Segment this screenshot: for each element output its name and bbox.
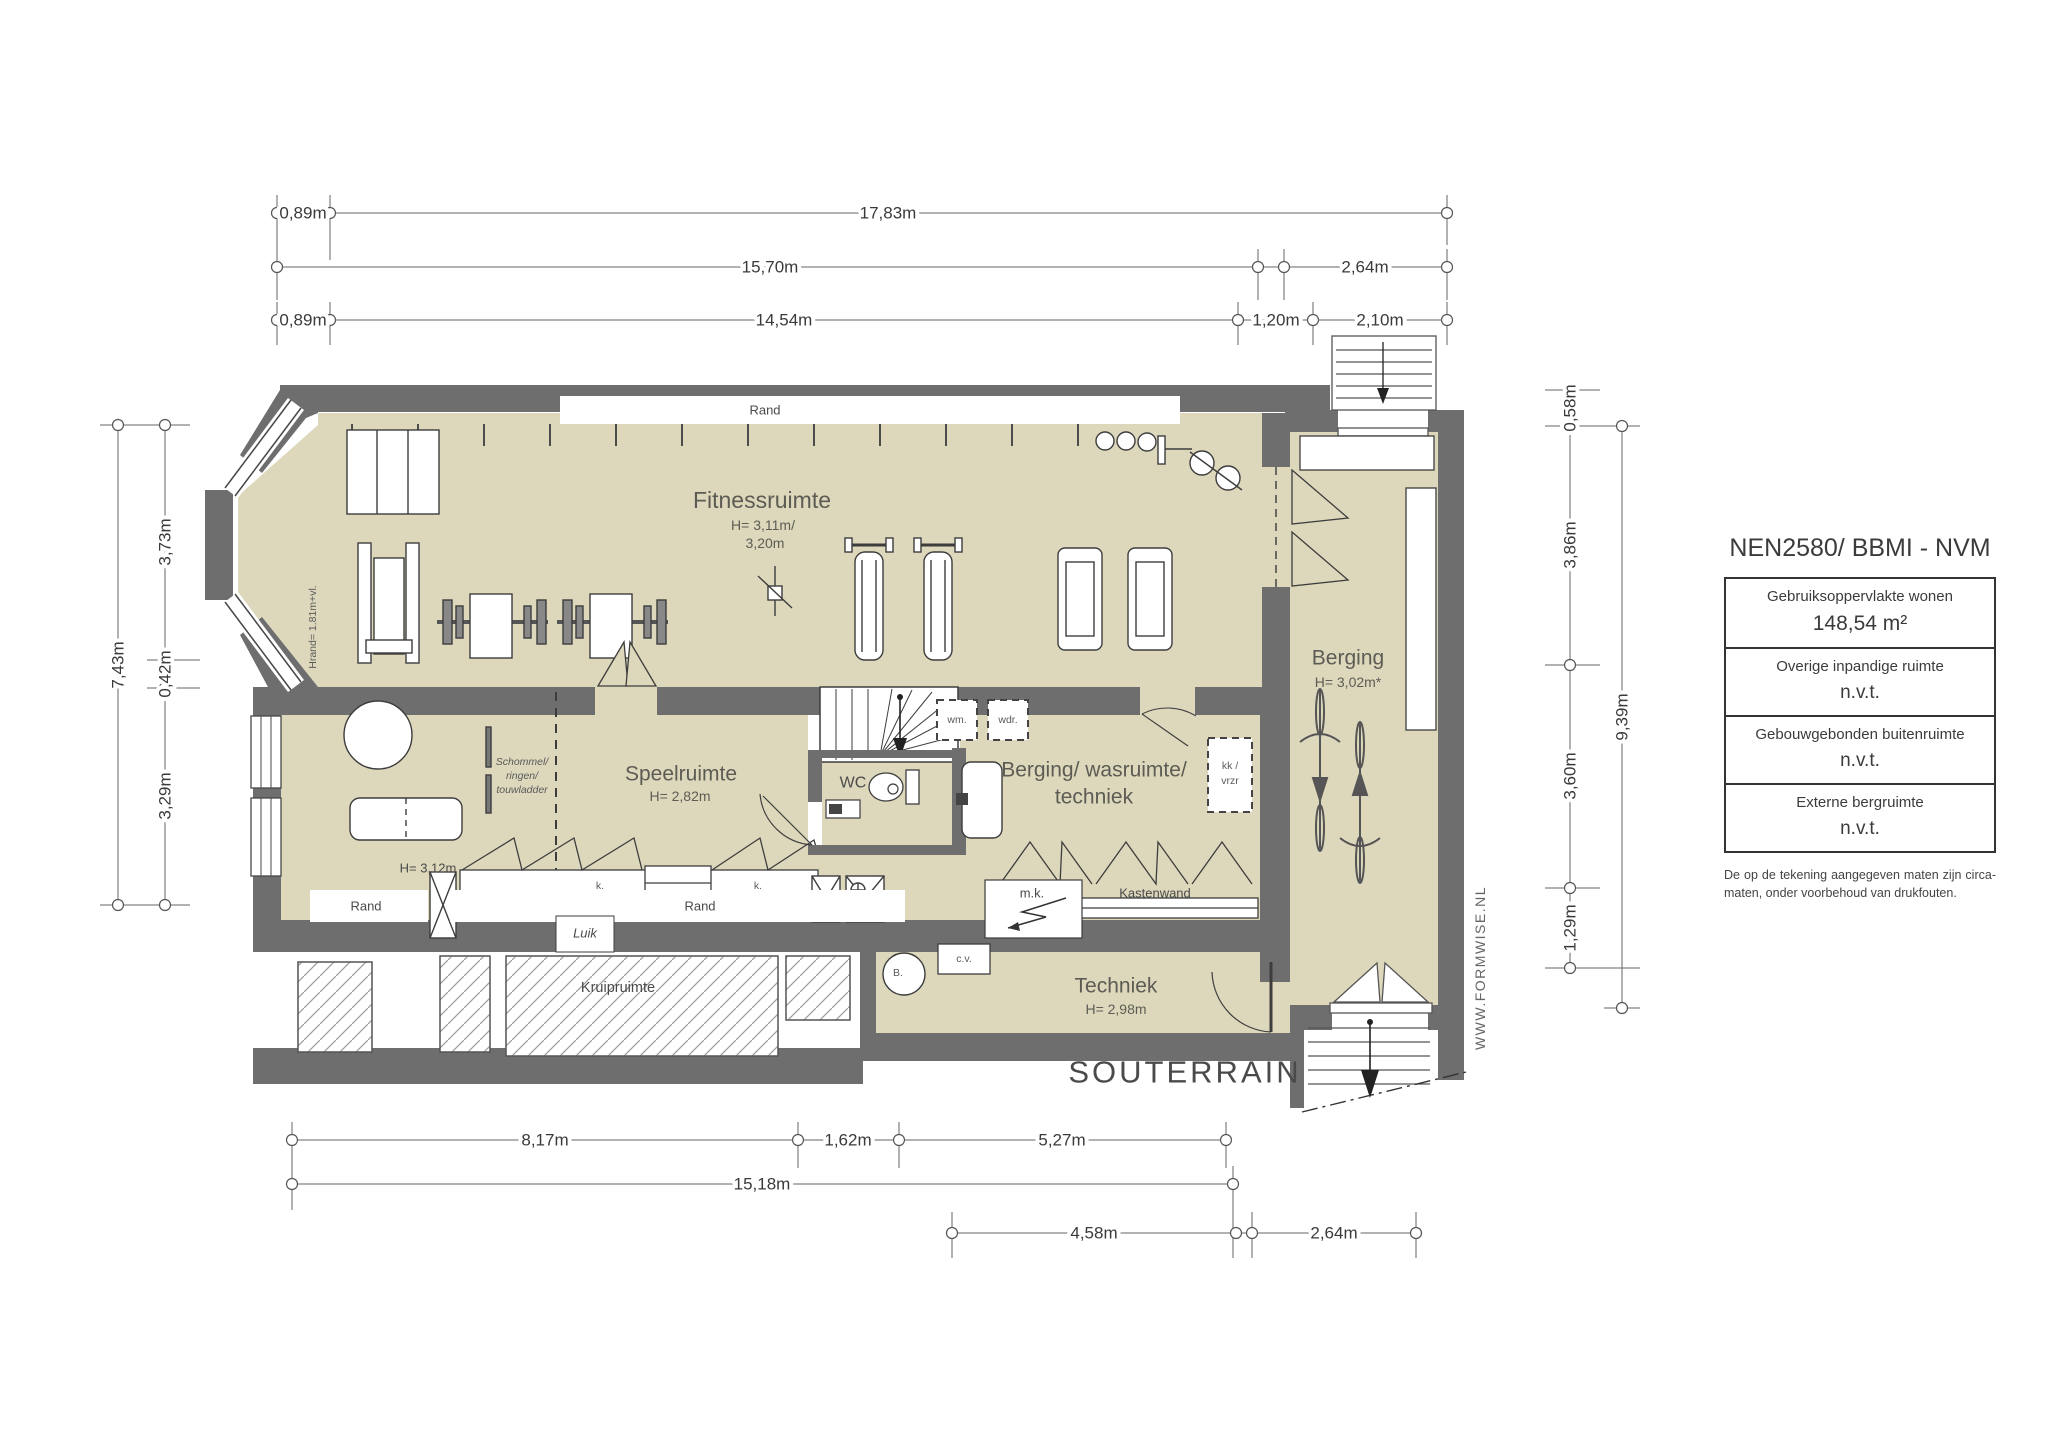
dim-right-c: 3,60m [1561, 752, 1580, 799]
wasruimte-label2: techniek [1055, 786, 1134, 809]
dim-left-total: 7,43m [109, 641, 128, 688]
speel-label: Speelruimte [625, 763, 737, 786]
luik-label: Luik [573, 926, 598, 941]
rand-top-label: Rand [749, 403, 780, 418]
kk-label: kk / [1222, 760, 1238, 772]
dim-top1-b: 17,83m [860, 204, 917, 223]
techniek-height: H= 2,98m [1085, 1001, 1146, 1017]
legend-row-buitenruimte: Gebouwgebonden buitenruimte n.v.t. [1726, 715, 1994, 783]
nen2580-legend: NEN2580/ BBMI - NVM Gebruiksoppervlakte … [1724, 534, 1996, 902]
legend-row-value: 148,54 m² [1732, 612, 1988, 636]
speel-height: H= 2,82m [649, 788, 710, 804]
dim-bottom1-a: 8,17m [521, 1131, 568, 1150]
rand-left-label: Rand [350, 899, 381, 914]
watermark: WWW.FORMWISE.NL [1472, 886, 1488, 1050]
boiler-label: B. [893, 967, 903, 979]
dim-top1-a: 0,89m [279, 204, 326, 223]
dim-top3-b: 14,54m [756, 311, 813, 330]
legend-row-bergruimte: Externe bergruimte n.v.t. [1726, 783, 1994, 851]
rand-mid-label: Rand [684, 899, 715, 914]
fitness-label: Fitnessruimte [693, 487, 831, 513]
dim-bottom1-c: 5,27m [1038, 1131, 1085, 1150]
legend-row-value: n.v.t. [1732, 750, 1988, 772]
schommel-label-1: Schommel/ [496, 756, 550, 768]
dim-top3-a: 0,89m [279, 311, 326, 330]
schommel-label-3: touwladder [496, 784, 548, 796]
wm-label: wm. [946, 714, 966, 726]
dim-left-b: 0,42m [156, 650, 175, 697]
vrzr-label: vrzr [1221, 775, 1239, 787]
legend-row-inpandig: Overige inpandige ruimte n.v.t. [1726, 647, 1994, 715]
techniek-label: Techniek [1075, 975, 1158, 998]
hrand-label: Hrand= 1.81m+vl. [307, 585, 319, 668]
legend-row-wonen: Gebruiksoppervlakte wonen 148,54 m² [1726, 579, 1994, 647]
dim-right-a: 0,58m [1561, 384, 1580, 431]
legend-row-label: Overige inpandige ruimte [1732, 658, 1988, 675]
dim-left-c: 3,29m [156, 772, 175, 819]
dim-right-b: 3,86m [1561, 521, 1580, 568]
legend-row-label: Gebouwgebonden buitenruimte [1732, 726, 1988, 743]
legend-row-label: Externe bergruimte [1732, 794, 1988, 811]
wasruimte-label1: Berging/ wasruimte/ [1001, 759, 1187, 782]
legend-row-value: n.v.t. [1732, 818, 1988, 840]
legend-title: NEN2580/ BBMI - NVM [1724, 534, 1996, 563]
berging-height: H= 3,02m* [1315, 674, 1382, 690]
legend-row-value: n.v.t. [1732, 682, 1988, 704]
floorplan-page: 0,89m 17,83m 15,70m 2,64m 0,89m 14,54m 1… [0, 0, 2048, 1448]
kruipruimte-label: Kruipruimte [581, 980, 655, 996]
dim-bottom1-b: 1,62m [824, 1131, 871, 1150]
speel-height-left: H= 3,12m [400, 861, 457, 876]
legend-table: Gebruiksoppervlakte wonen 148,54 m² Over… [1724, 577, 1996, 853]
mk-label: m.k. [1020, 886, 1045, 901]
legend-disclaimer: De op de tekening aangegeven maten zijn … [1724, 867, 1996, 902]
k-label-2: k. [754, 880, 762, 892]
dim-left-a: 3,73m [156, 518, 175, 565]
dim-top3-c: 1,20m [1252, 311, 1299, 330]
schommel-label-2: ringen/ [506, 770, 539, 782]
dim-top3-d: 2,10m [1356, 311, 1403, 330]
rand-strip-top [560, 396, 1180, 424]
kastenwand-label: Kastenwand [1119, 886, 1191, 901]
legend-row-label: Gebruiksoppervlakte wonen [1732, 588, 1988, 605]
plan-title: SOUTERRAIN [1068, 1055, 1301, 1090]
k-label-1: k. [596, 880, 604, 892]
kruipruimte-hatch [298, 956, 850, 1056]
dim-bottom2: 15,18m [734, 1175, 791, 1194]
dim-top2-a: 15,70m [742, 258, 799, 277]
cv-label: c.v. [956, 953, 972, 965]
berging-label: Berging [1312, 647, 1384, 670]
dim-right-d: 1,29m [1561, 904, 1580, 951]
dim-top2-b: 2,64m [1341, 258, 1388, 277]
dim-right-total: 9,39m [1613, 693, 1632, 740]
dim-bottom3-a: 4,58m [1070, 1224, 1117, 1243]
dim-bottom3-b: 2,64m [1310, 1224, 1357, 1243]
wc-label: WC [840, 775, 867, 792]
fitness-height1: H= 3,11m/ [731, 517, 795, 533]
wdr-label: wdr. [997, 714, 1017, 726]
fitness-height2: 3,20m [746, 535, 785, 551]
